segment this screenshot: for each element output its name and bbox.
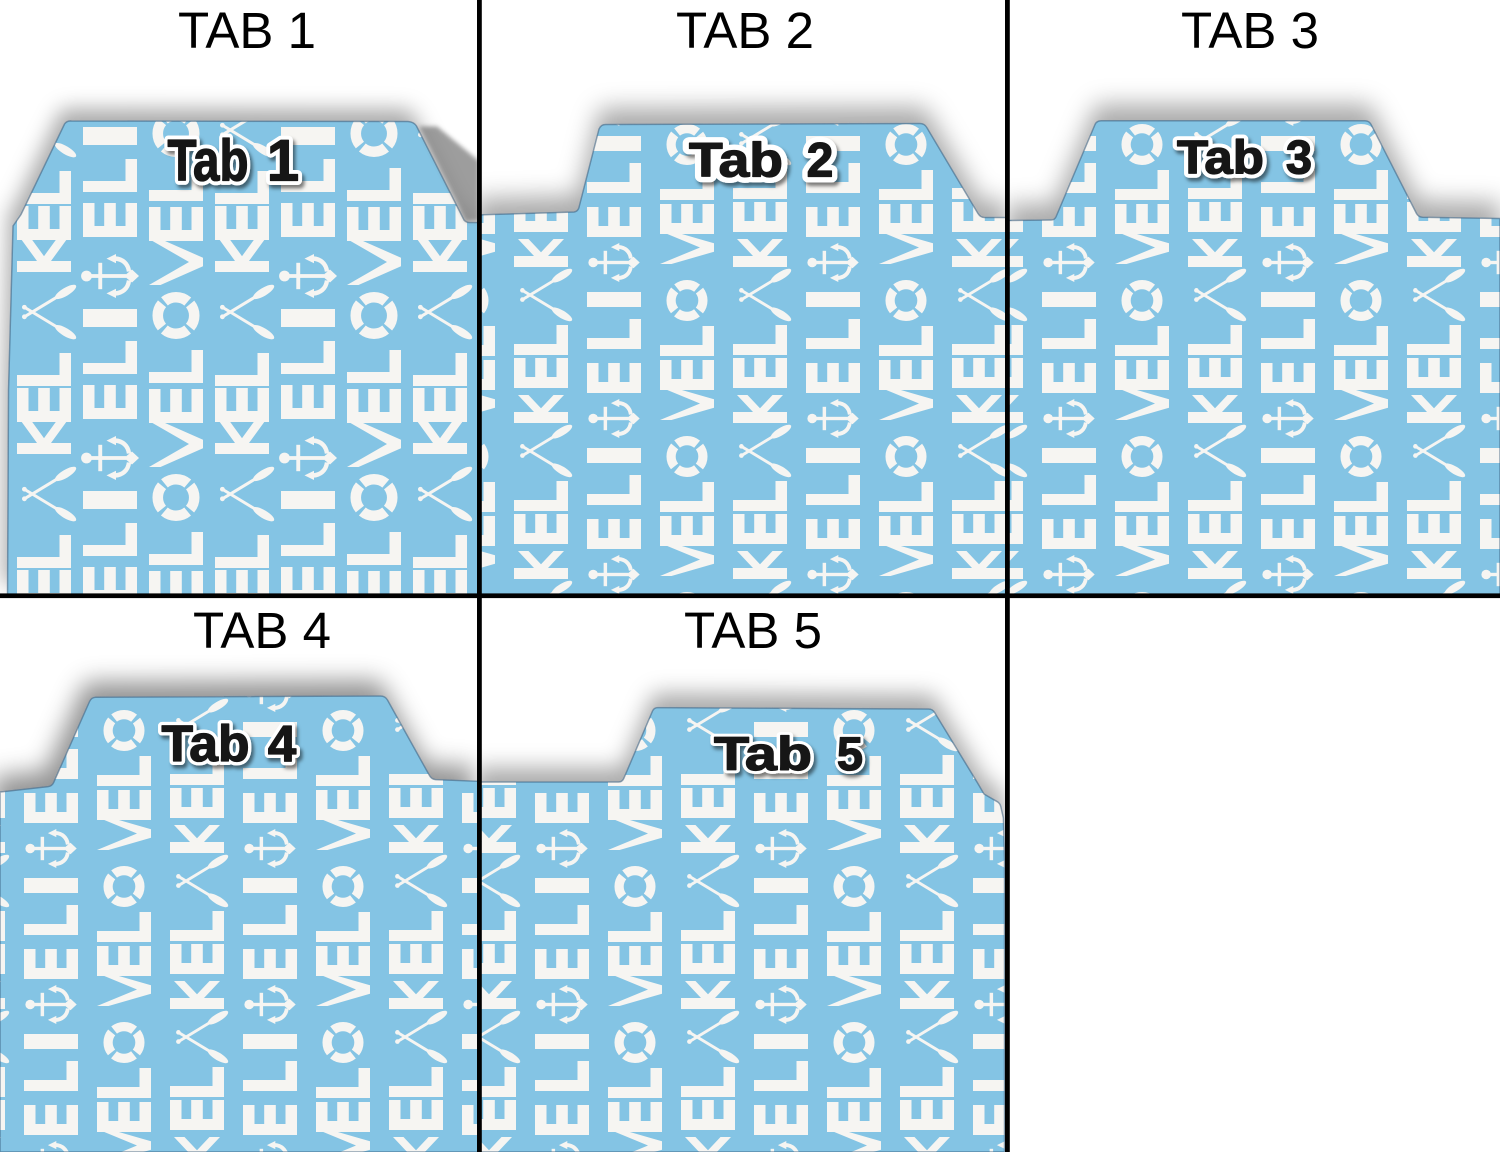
svg-text:Tab: Tab — [1177, 131, 1264, 184]
svg-text:Tab: Tab — [714, 727, 812, 780]
svg-text:2: 2 — [807, 135, 834, 188]
svg-text:TAB 4: TAB 4 — [193, 602, 331, 659]
svg-text:Tab: Tab — [168, 129, 249, 194]
svg-text:1: 1 — [267, 129, 299, 194]
svg-text:TAB 2: TAB 2 — [676, 2, 814, 59]
svg-text:3: 3 — [1286, 131, 1312, 184]
svg-text:TAB 3: TAB 3 — [1181, 2, 1319, 59]
svg-text:4: 4 — [268, 715, 297, 772]
svg-text:5: 5 — [837, 727, 863, 780]
svg-text:Tab: Tab — [689, 135, 783, 188]
svg-text:Tab: Tab — [162, 715, 250, 772]
svg-text:TAB 5: TAB 5 — [684, 602, 822, 659]
svg-text:TAB 1: TAB 1 — [178, 2, 316, 59]
